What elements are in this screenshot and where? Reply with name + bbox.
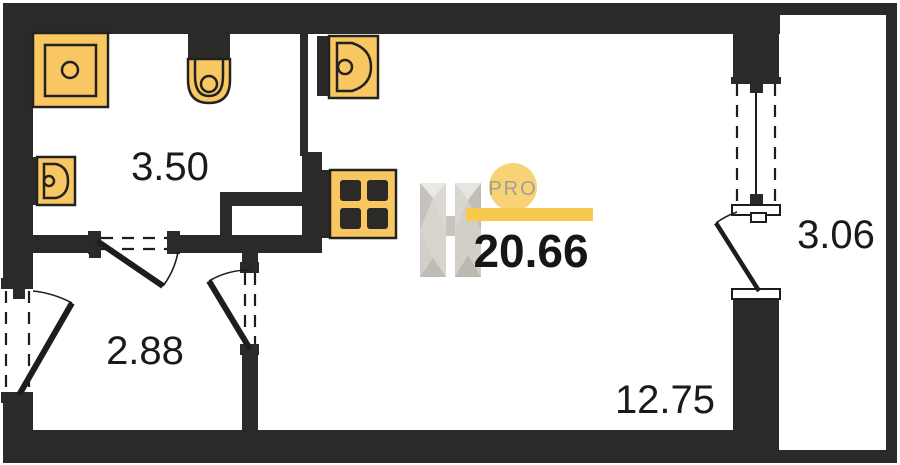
- balcony-window-unit: [716, 82, 780, 299]
- toilet-icon: [188, 33, 230, 103]
- stove-burner-4: [367, 208, 388, 229]
- stove-burner-3: [340, 208, 361, 229]
- wall-bottom: [3, 430, 779, 463]
- balcony-area-label: 3.06: [797, 213, 875, 257]
- shaft-wall-right: [302, 152, 322, 253]
- balcony-wall-top: [779, 3, 897, 15]
- balcony-door-swing-arc: [716, 212, 737, 223]
- logo-h-letter: [420, 183, 481, 277]
- window-wall-upper: [733, 34, 779, 77]
- balcony-wall-bottom: [779, 450, 897, 463]
- logo-pro-label: PRO: [488, 178, 537, 200]
- hall-door-leaf: [209, 281, 250, 349]
- window-mullion-top: [750, 82, 763, 93]
- fixtures: [30, 33, 396, 238]
- window-wall-lower: [733, 300, 779, 430]
- wall-top: [3, 3, 780, 34]
- floor-plan-svg: PRO 3.50 2.88 12.75 3.06 20.66: [0, 0, 900, 465]
- bathroom-south-wall-right: [180, 235, 322, 253]
- bathroom-area-label: 3.50: [131, 145, 209, 189]
- entrance-door-leaf: [19, 303, 72, 395]
- living-room-area-label: 12.75: [615, 378, 715, 422]
- bathroom-door-leaf: [97, 241, 163, 286]
- balcony-door-threshold: [732, 289, 780, 299]
- kitchen-sink-icon: [317, 36, 378, 98]
- bathroom-hinge-block: [89, 249, 101, 258]
- hallway-area-label: 2.88: [106, 329, 184, 373]
- window-mullion-bottom: [750, 194, 763, 205]
- floor-plan: PRO 3.50 2.88 12.75 3.06 20.66: [0, 0, 900, 465]
- bathroom-east-wall: [300, 34, 308, 156]
- balcony-door-leaf: [716, 223, 759, 291]
- logo-bar: [466, 208, 593, 221]
- hall-east-wall-lower: [242, 355, 258, 430]
- toilet-tank: [188, 33, 230, 59]
- ventilation-shaft: [232, 206, 302, 235]
- shower-icon: [33, 33, 108, 107]
- stove-burner-1: [340, 180, 361, 201]
- stove-icon: [320, 170, 396, 238]
- bathroom-south-wall-left: [33, 235, 88, 253]
- wall-left-upper: [3, 3, 33, 278]
- entrance-hinge-block: [13, 289, 25, 299]
- washbasin-icon: [30, 157, 75, 205]
- bathroom-door-swing-arc: [163, 252, 178, 286]
- entrance-door-swing-arc: [33, 291, 72, 303]
- entrance-jamb-top: [1, 278, 33, 289]
- shaft-wall-left: [220, 192, 232, 253]
- total-area-label: 20.66: [473, 225, 588, 277]
- balcony-wall-right: [886, 3, 897, 463]
- hall-door-jamb-top: [240, 262, 259, 273]
- stove-burner-2: [367, 180, 388, 201]
- bathroom-door-jamb-right: [167, 231, 180, 254]
- balcony-door-hinge-block: [751, 213, 766, 222]
